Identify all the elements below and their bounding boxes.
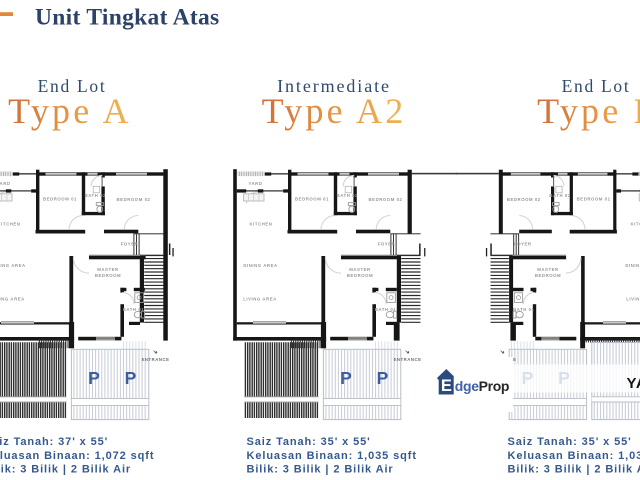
svg-text:BATH 01: BATH 01 bbox=[375, 307, 396, 312]
svg-text:FOYER: FOYER bbox=[121, 241, 139, 246]
svg-text:Unit Tingkat Atas: Unit Tingkat Atas bbox=[35, 5, 219, 31]
svg-text:KITCHEN: KITCHEN bbox=[631, 222, 640, 227]
svg-text:BATH 02: BATH 02 bbox=[85, 193, 106, 198]
svg-text:Bilik: 3 Bilik | 2 Bilik Air: Bilik: 3 Bilik | 2 Bilik Air bbox=[247, 464, 394, 476]
svg-text:BEDROOM 02: BEDROOM 02 bbox=[507, 197, 541, 202]
svg-text:Type B: Type B bbox=[537, 91, 640, 131]
svg-text:BATH 02: BATH 02 bbox=[337, 193, 358, 198]
svg-text:KITCHEN: KITCHEN bbox=[0, 222, 20, 227]
svg-text:BEDROOM 01: BEDROOM 01 bbox=[577, 197, 611, 202]
svg-text:ENTRANCE: ENTRANCE bbox=[142, 357, 170, 362]
svg-text:BEDROOM 02: BEDROOM 02 bbox=[117, 197, 151, 202]
svg-text:Bilik: 3 Bilik | 2 Bilik Air: Bilik: 3 Bilik | 2 Bilik Air bbox=[508, 464, 640, 476]
svg-text:MASTER: MASTER bbox=[537, 267, 559, 272]
svg-text:E: E bbox=[441, 377, 452, 395]
svg-text:YARD: YARD bbox=[0, 181, 10, 186]
svg-text:BEDROOM: BEDROOM bbox=[347, 273, 373, 278]
svg-text:BATH 02: BATH 02 bbox=[549, 193, 570, 198]
svg-text:MASTER: MASTER bbox=[349, 267, 371, 272]
svg-text:DINING AREA: DINING AREA bbox=[625, 263, 640, 268]
svg-text:KITCHEN: KITCHEN bbox=[250, 222, 273, 227]
svg-text:Saiz Tanah: 35' x 55': Saiz Tanah: 35' x 55' bbox=[247, 436, 371, 448]
svg-text:Keluasan Binaan: 1,035 sqft: Keluasan Binaan: 1,035 sqft bbox=[247, 450, 417, 462]
svg-text:dgeProp: dgeProp bbox=[455, 378, 509, 394]
svg-text:LIVING AREA: LIVING AREA bbox=[626, 297, 640, 302]
svg-text:FOYER: FOYER bbox=[514, 241, 532, 246]
svg-text:BEDROOM 01: BEDROOM 01 bbox=[43, 197, 77, 202]
svg-text:DINING AREA: DINING AREA bbox=[243, 263, 277, 268]
svg-text:LIVING AREA: LIVING AREA bbox=[243, 297, 277, 302]
svg-text:FOYER: FOYER bbox=[378, 241, 396, 246]
svg-text:P: P bbox=[88, 368, 100, 388]
svg-text:Type A: Type A bbox=[8, 91, 132, 131]
svg-text:DINING AREA: DINING AREA bbox=[0, 263, 26, 268]
svg-text:Saiz Tanah: 37' x 55': Saiz Tanah: 37' x 55' bbox=[0, 436, 108, 448]
svg-text:LIVING AREA: LIVING AREA bbox=[0, 297, 25, 302]
svg-text:MASTER: MASTER bbox=[97, 267, 119, 272]
svg-text:ENTRANCE: ENTRANCE bbox=[394, 357, 422, 362]
svg-text:YA: YA bbox=[627, 375, 640, 392]
svg-text:P: P bbox=[340, 368, 352, 388]
svg-text:BEDROOM: BEDROOM bbox=[95, 273, 121, 278]
svg-text:Saiz Tanah: 35' x 55': Saiz Tanah: 35' x 55' bbox=[508, 436, 632, 448]
svg-text:BEDROOM 01: BEDROOM 01 bbox=[295, 197, 329, 202]
svg-text:BEDROOM 02: BEDROOM 02 bbox=[369, 197, 403, 202]
svg-text:Keluasan Binaan: 1,035 sqft: Keluasan Binaan: 1,035 sqft bbox=[508, 450, 640, 462]
svg-text:Bilik: 3 Bilik | 2 Bilik Air: Bilik: 3 Bilik | 2 Bilik Air bbox=[0, 464, 131, 476]
svg-text:YARD: YARD bbox=[249, 181, 263, 186]
svg-text:BATH 01: BATH 01 bbox=[123, 307, 144, 312]
svg-text:Keluasan Binaan: 1,072 sqft: Keluasan Binaan: 1,072 sqft bbox=[0, 450, 154, 462]
svg-text:BEDROOM: BEDROOM bbox=[535, 273, 561, 278]
svg-text:Type A2: Type A2 bbox=[262, 91, 407, 131]
svg-text:P: P bbox=[125, 368, 137, 388]
svg-text:P: P bbox=[377, 368, 389, 388]
svg-text:BATH 01: BATH 01 bbox=[513, 307, 534, 312]
